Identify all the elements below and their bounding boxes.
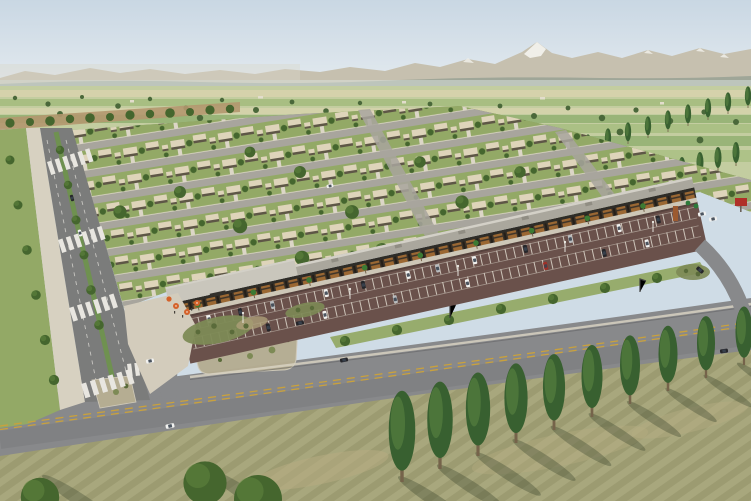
green-umbrella (686, 201, 691, 206)
green-umbrella (694, 204, 699, 209)
rendering-canvas (0, 0, 751, 501)
mountain-haze-left (0, 64, 300, 80)
monument-sign (735, 198, 747, 206)
parked-van (709, 216, 718, 222)
entry-sculpture (673, 206, 678, 221)
aerial-rendering (0, 0, 751, 501)
roundabout-island (676, 264, 710, 280)
